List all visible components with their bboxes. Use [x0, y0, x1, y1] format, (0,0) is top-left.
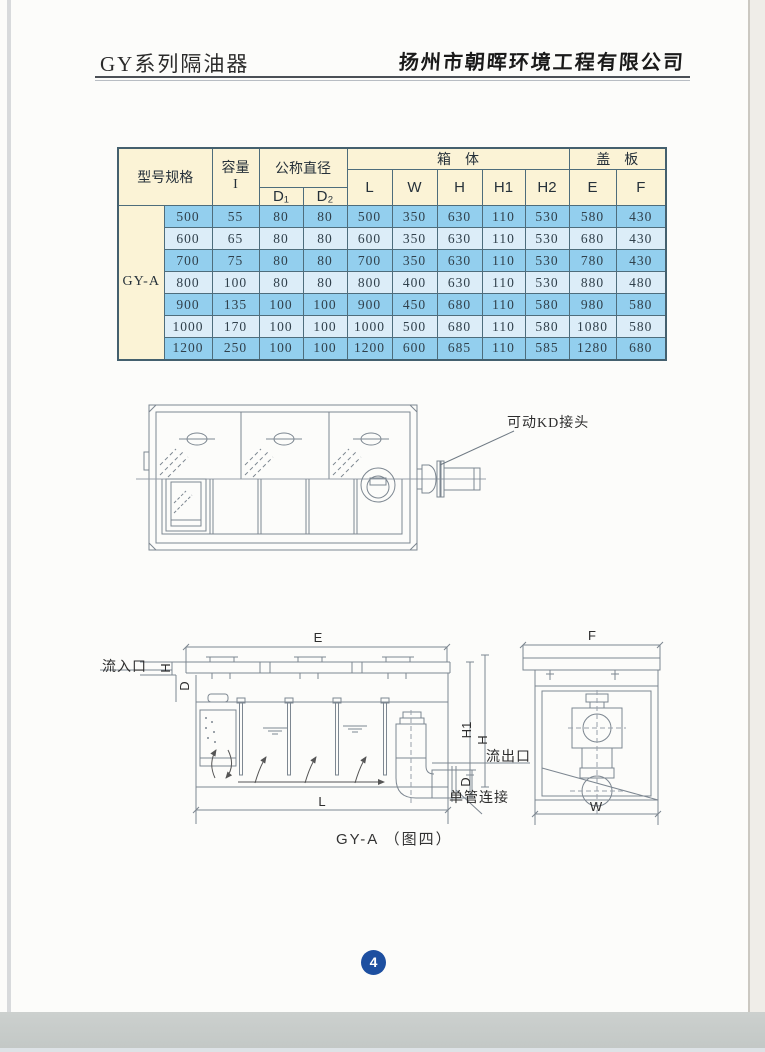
- page-number-badge: 4: [361, 950, 386, 975]
- spec-cell: 500: [164, 206, 212, 228]
- spec-cell: 450: [392, 294, 437, 316]
- col-header-L: L: [347, 170, 392, 206]
- spec-cell: 530: [525, 250, 569, 272]
- spec-cell: 55: [212, 206, 259, 228]
- dim-H1-H: [466, 655, 489, 787]
- spec-cell: 350: [392, 206, 437, 228]
- spec-cell: 110: [482, 294, 525, 316]
- spec-cell: 800: [347, 272, 392, 294]
- spec-cell: 100: [303, 316, 347, 338]
- spec-cell: 100: [212, 272, 259, 294]
- col-header-model: 型号规格: [118, 148, 212, 206]
- spec-cell: 80: [259, 272, 303, 294]
- spec-cell: 400: [392, 272, 437, 294]
- spec-cell: 630: [437, 272, 482, 294]
- spec-cell: 110: [482, 206, 525, 228]
- flow-arrows: [212, 750, 384, 783]
- single-pipe-label: 单管连接: [449, 787, 509, 807]
- spec-cell: 580: [525, 316, 569, 338]
- spec-cell: 100: [259, 316, 303, 338]
- spec-cell: 480: [616, 272, 666, 294]
- spec-cell: 630: [437, 228, 482, 250]
- spec-cell: 780: [569, 250, 616, 272]
- col-header-E: E: [569, 170, 616, 206]
- spec-cell: 100: [259, 294, 303, 316]
- spec-cell: 1280: [569, 338, 616, 360]
- spec-cell: 530: [525, 228, 569, 250]
- sloped-bottom: [542, 768, 658, 800]
- lid-handle: [179, 433, 215, 445]
- spec-cell: 80: [303, 228, 347, 250]
- spec-cell: 900: [347, 294, 392, 316]
- scan-edge-right: [750, 0, 765, 1052]
- scan-edge-bottom-strip: [0, 1048, 765, 1052]
- spec-cell: 135: [212, 294, 259, 316]
- figure-caption: GY-A （图四）: [336, 828, 453, 849]
- spec-cell: 500: [392, 316, 437, 338]
- spec-cell: 1000: [347, 316, 392, 338]
- spec-cell: 110: [482, 272, 525, 294]
- col-group-cover: 盖 板: [569, 148, 666, 170]
- capacity-label-cn: 容量: [213, 161, 259, 177]
- spec-cell: 580: [616, 294, 666, 316]
- spec-table: 型号规格 容量 I 公称直径 箱 体 盖 板 L W H H1 H2 E F D…: [117, 147, 667, 361]
- col-header-D2: D₂: [303, 188, 347, 206]
- end-view-drawing: F W: [510, 618, 670, 833]
- spec-cell: 170: [212, 316, 259, 338]
- table-row: GY-A500558080500350630110530580430: [118, 206, 666, 228]
- scan-edge-bottom: [0, 1012, 765, 1048]
- spec-cell: 1080: [569, 316, 616, 338]
- spec-cell: 580: [525, 294, 569, 316]
- dim-label-E: E: [314, 630, 323, 645]
- table-row: 100017010010010005006801105801080580: [118, 316, 666, 338]
- table-row: 700758080700350630110530780430: [118, 250, 666, 272]
- spec-cell: 630: [437, 206, 482, 228]
- model-cell: GY-A: [118, 206, 164, 360]
- dim-label-L: L: [318, 794, 325, 809]
- inlet-basket-plan: [166, 479, 206, 531]
- company-name: 扬州市朝晖环境工程有限公司: [398, 46, 686, 75]
- spec-cell: 1200: [347, 338, 392, 360]
- col-header-H2: H2: [525, 170, 569, 206]
- scan-edge-left: [7, 0, 11, 1052]
- table-row: 120025010010012006006851105851280680: [118, 338, 666, 360]
- spec-cell: 900: [164, 294, 212, 316]
- spec-cell: 585: [525, 338, 569, 360]
- dim-label-D-inlet: D: [177, 681, 192, 690]
- dim-label-H: H: [475, 735, 490, 744]
- table-row: 600658080600350630110530680430: [118, 228, 666, 250]
- scanned-catalog-page: GY系列隔油器 扬州市朝晖环境工程有限公司 型号规格 容量 I 公称直径 箱 体…: [0, 0, 765, 1052]
- header-rule-shadow: [95, 80, 690, 81]
- col-header-H: H: [437, 170, 482, 206]
- spec-cell: 980: [569, 294, 616, 316]
- spec-cell: 250: [212, 338, 259, 360]
- dim-label-W: W: [590, 799, 603, 814]
- spec-cell: 530: [525, 272, 569, 294]
- dim-label-F: F: [588, 628, 596, 643]
- spec-cell: 1000: [164, 316, 212, 338]
- spec-cell: 110: [482, 338, 525, 360]
- table-row: 8001008080800400630110530880480: [118, 272, 666, 294]
- spec-cell: 80: [259, 228, 303, 250]
- col-header-H1: H1: [482, 170, 525, 206]
- page-title: GY系列隔油器: [100, 48, 249, 78]
- outlet-elbow-plan: [361, 468, 395, 502]
- partitions: [210, 479, 357, 534]
- spec-cell: 100: [303, 338, 347, 360]
- spec-cell: 80: [303, 250, 347, 272]
- spec-cell: 350: [392, 228, 437, 250]
- spec-cell: 75: [212, 250, 259, 272]
- centerlines: [568, 690, 626, 814]
- tank-body: [196, 673, 448, 787]
- spec-cell: 100: [303, 294, 347, 316]
- spec-cell: 600: [164, 228, 212, 250]
- col-header-D1: D₁: [259, 188, 303, 206]
- spec-cell: 700: [347, 250, 392, 272]
- dim-label-D-outlet: D: [458, 777, 473, 786]
- left-wall-lug: [144, 452, 149, 470]
- dim-F: [520, 642, 663, 658]
- col-header-W: W: [392, 170, 437, 206]
- water-level-marks: [263, 726, 367, 734]
- header-rule: [95, 76, 690, 78]
- spec-cell: 685: [437, 338, 482, 360]
- lid-hatch: [160, 449, 361, 477]
- spec-cell: 80: [259, 250, 303, 272]
- outlet-label: 流出口: [486, 746, 531, 766]
- spec-cell: 500: [347, 206, 392, 228]
- spec-cell: 1200: [164, 338, 212, 360]
- kd-leader-line: [440, 431, 514, 465]
- spec-cell: 430: [616, 206, 666, 228]
- spec-cell: 600: [392, 338, 437, 360]
- side-section-drawing: E L H D H1 H D: [100, 618, 540, 853]
- table-row: 900135100100900450680110580980580: [118, 294, 666, 316]
- spec-cell: 350: [392, 250, 437, 272]
- spec-cell: 680: [437, 294, 482, 316]
- spec-cell: 110: [482, 250, 525, 272]
- kd-joint-label: 可动KD接头: [507, 412, 589, 432]
- cover-slab: [140, 662, 450, 673]
- spec-table-body: GY-A500558080500350630110530580430600658…: [118, 206, 666, 360]
- dim-label-H-inlet: H: [158, 663, 173, 672]
- spec-cell: 800: [164, 272, 212, 294]
- spec-cell: 680: [616, 338, 666, 360]
- end-cover: [523, 658, 660, 680]
- spec-cell: 80: [303, 206, 347, 228]
- lid-dividers: [241, 412, 329, 479]
- spec-cell: 65: [212, 228, 259, 250]
- spec-cell: 600: [347, 228, 392, 250]
- spec-cell: 580: [569, 206, 616, 228]
- baffles: [237, 698, 389, 775]
- dim-label-H1: H1: [459, 722, 474, 739]
- spec-cell: 110: [482, 316, 525, 338]
- lid-handle: [266, 433, 302, 445]
- cover-handles: [206, 657, 414, 679]
- spec-cell: 430: [616, 250, 666, 272]
- spec-cell: 630: [437, 250, 482, 272]
- inlet-label: 流入口: [102, 656, 147, 676]
- spec-cell: 80: [303, 272, 347, 294]
- spec-cell: 530: [525, 206, 569, 228]
- col-header-capacity: 容量 I: [212, 148, 259, 206]
- spec-cell: 700: [164, 250, 212, 272]
- spec-cell: 80: [259, 206, 303, 228]
- spec-cell: 580: [616, 316, 666, 338]
- capacity-label-unit: I: [213, 177, 259, 193]
- spec-cell: 680: [569, 228, 616, 250]
- spec-cell: 680: [437, 316, 482, 338]
- col-header-nominal-diameter: 公称直径: [259, 148, 347, 188]
- spec-cell: 100: [259, 338, 303, 360]
- col-group-box: 箱 体: [347, 148, 569, 170]
- spec-cell: 880: [569, 272, 616, 294]
- lid-handle: [353, 433, 389, 445]
- spec-cell: 110: [482, 228, 525, 250]
- spec-cell: 430: [616, 228, 666, 250]
- col-header-F: F: [616, 170, 666, 206]
